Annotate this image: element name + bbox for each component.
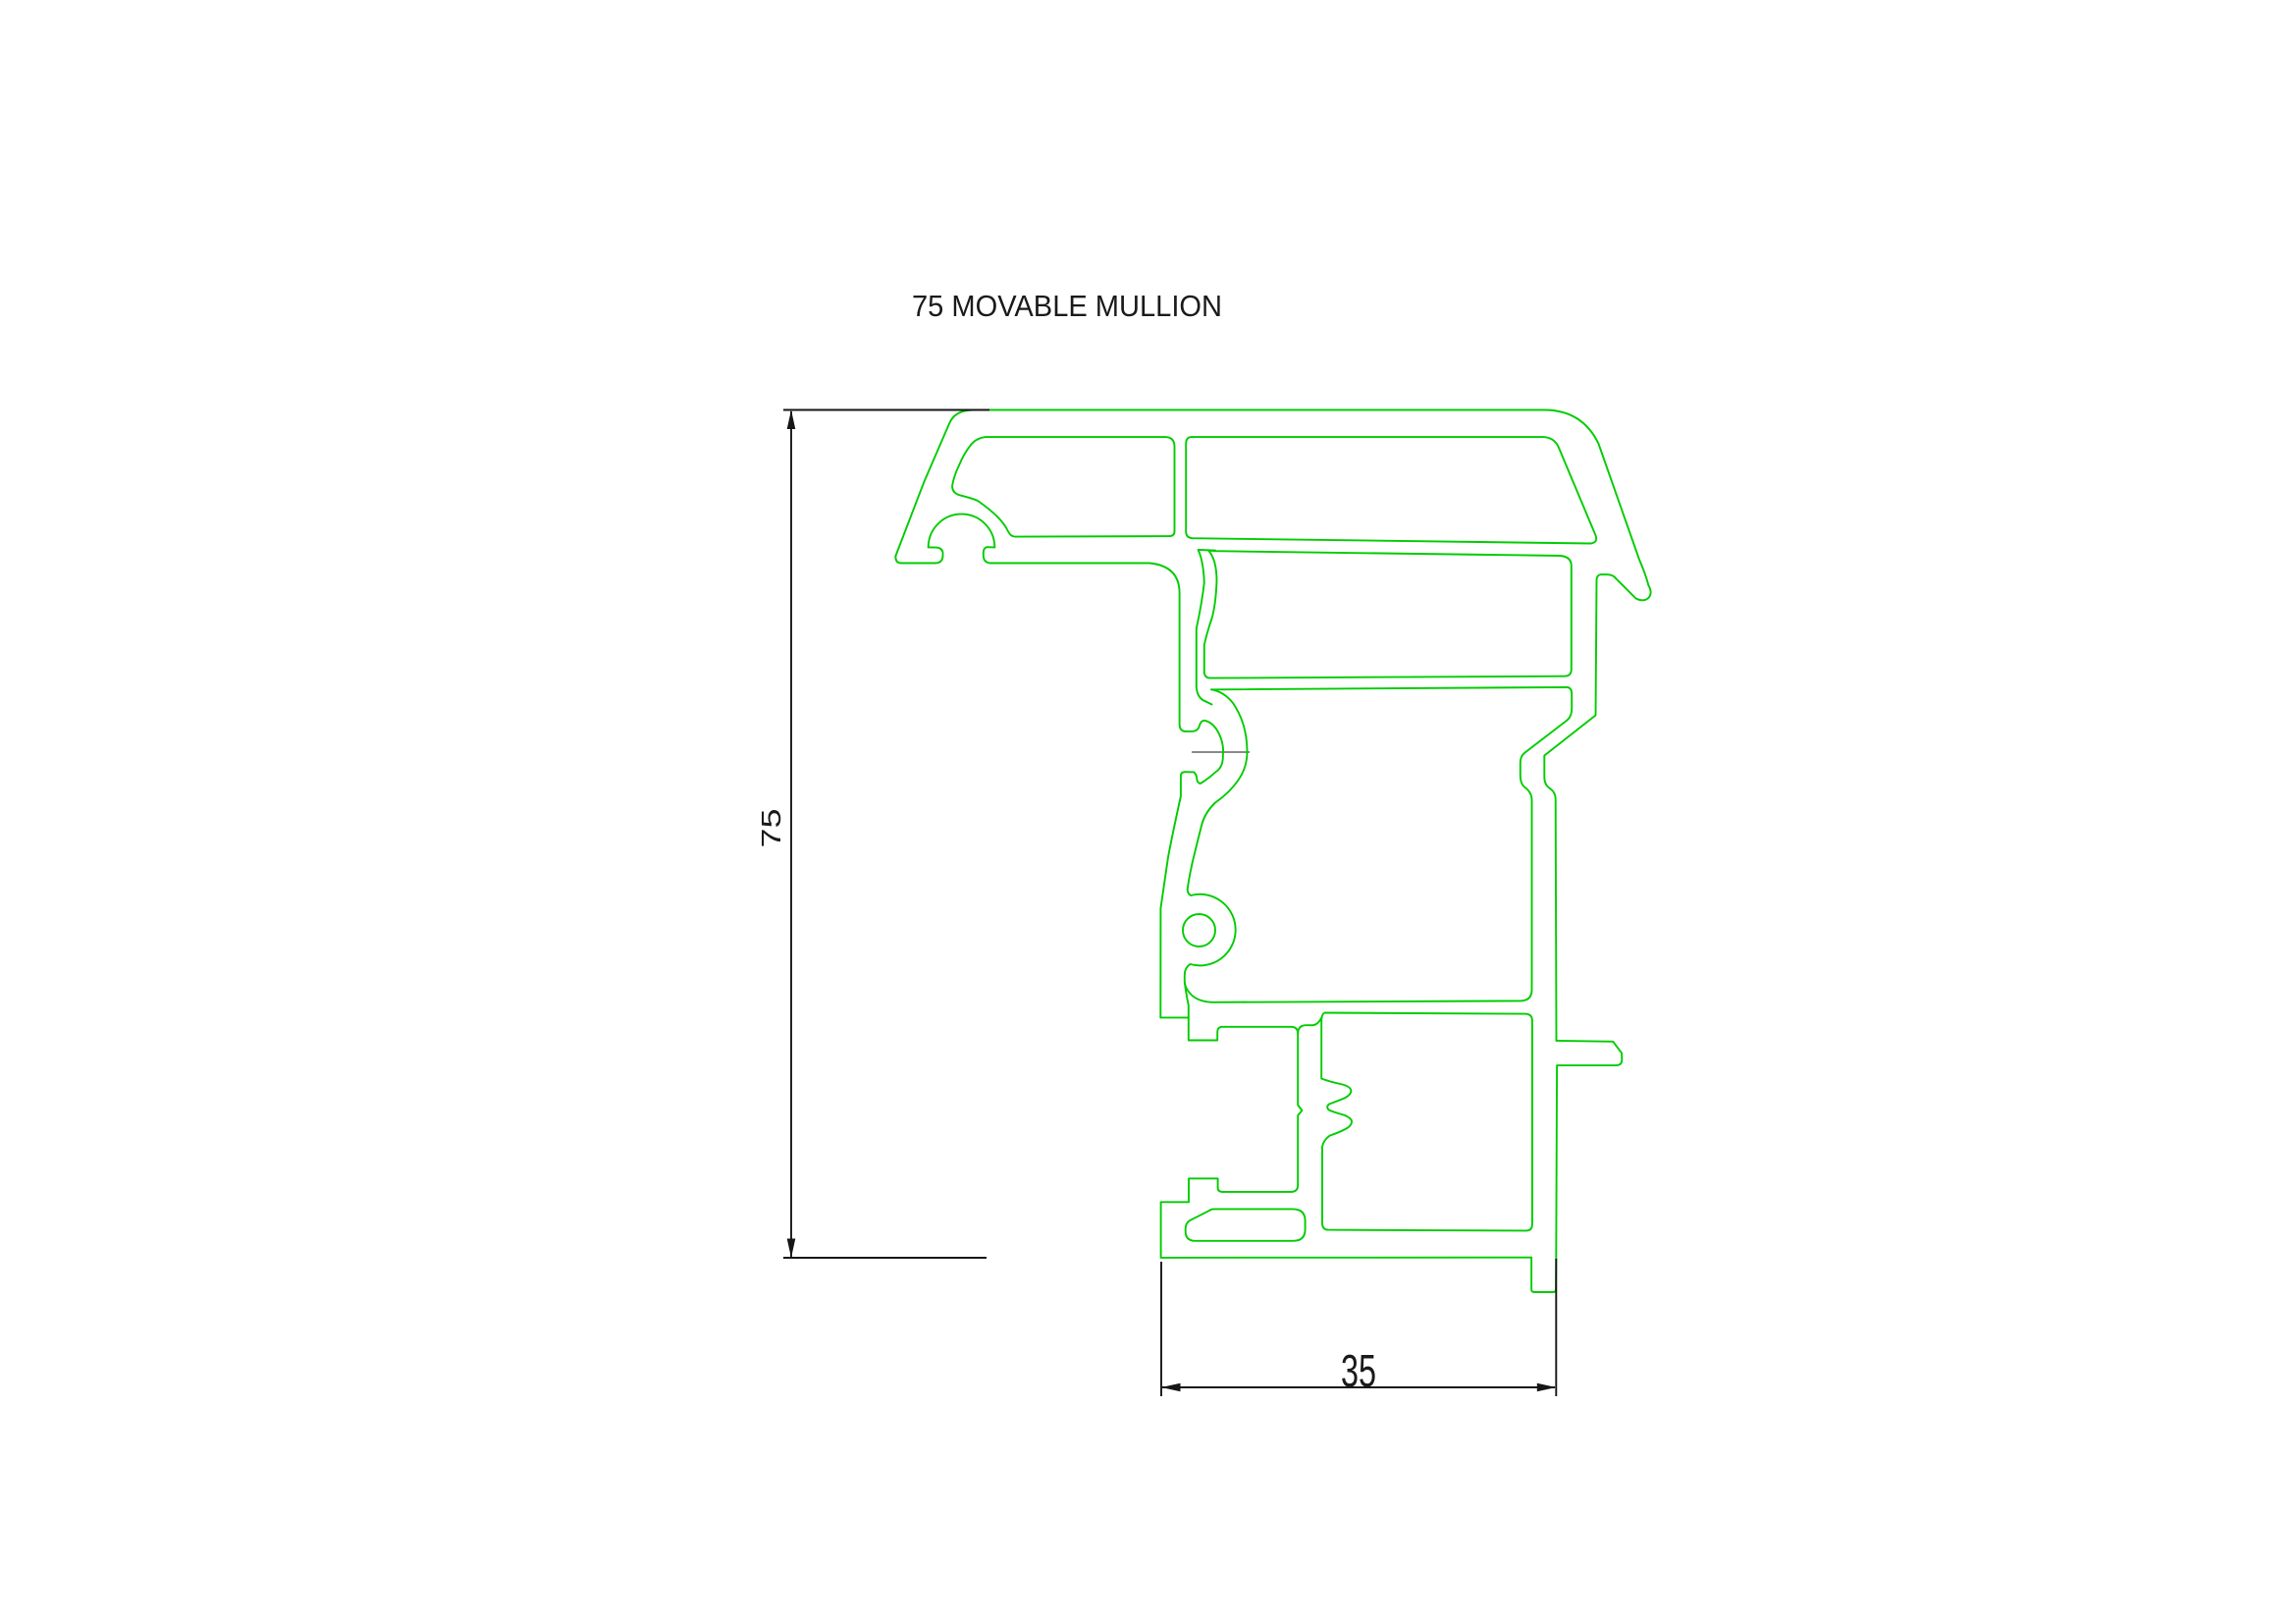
svg-text:35: 35	[1341, 1345, 1376, 1396]
svg-text:75: 75	[756, 809, 786, 848]
svg-text:75 MOVABLE MULLION: 75 MOVABLE MULLION	[912, 289, 1222, 323]
